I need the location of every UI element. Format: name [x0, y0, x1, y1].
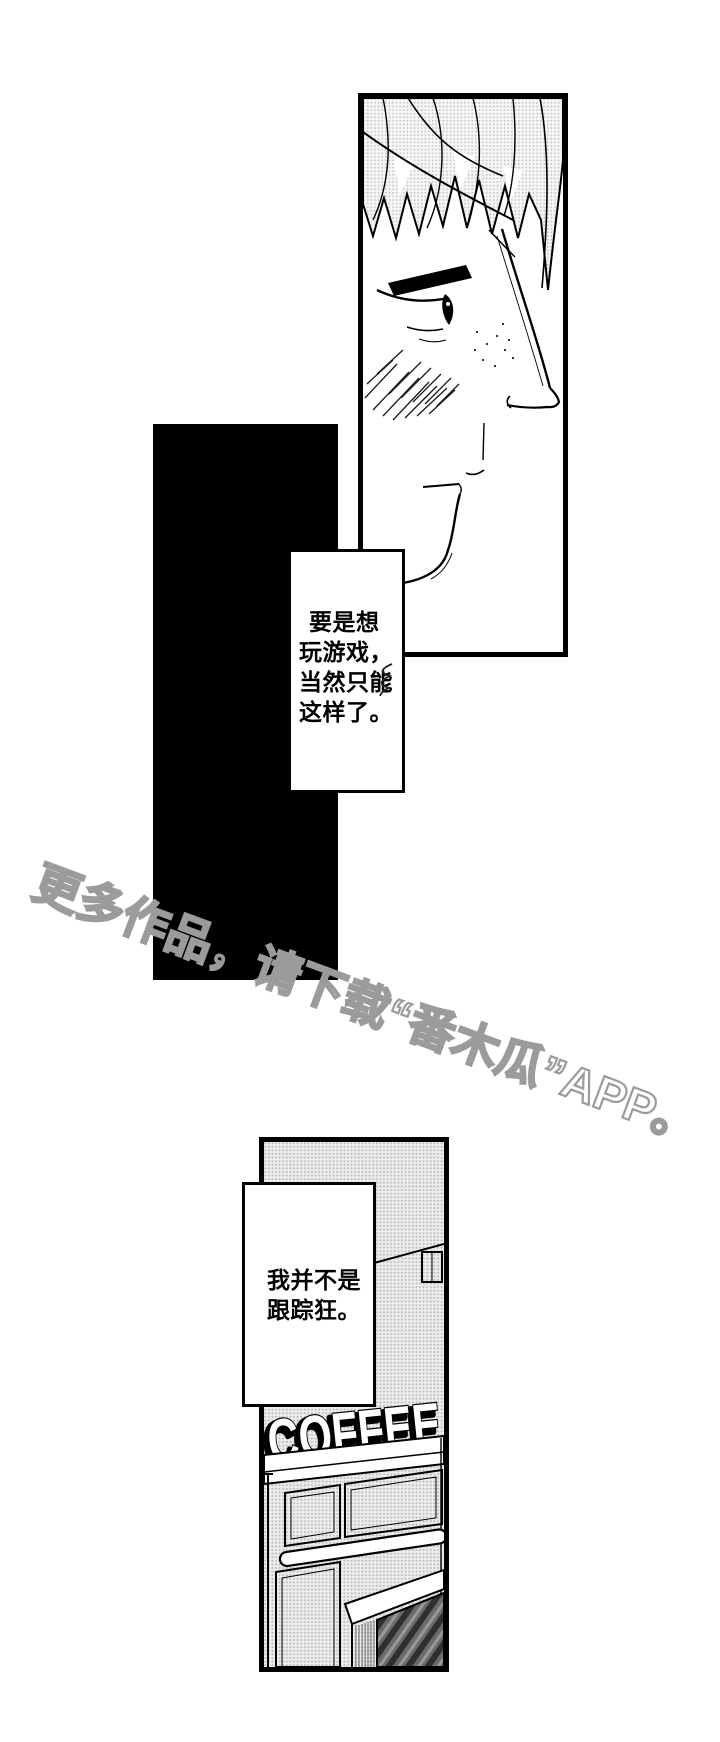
speech-bubble-2: 我并不是 跟踪狂。: [242, 1182, 376, 1407]
comic-page: 要是想 玩游戏， 当然只能 这样了。 更多作品，请下载“番木瓜”APP。: [0, 0, 720, 1742]
bubble-2-line: 跟踪狂。: [267, 1295, 373, 1325]
bubble-2-line: 我并不是: [267, 1265, 373, 1295]
sweat-squiggle-mark: [374, 660, 398, 696]
watermark-text: 更多作品，请下载“番木瓜”APP。: [26, 856, 707, 1153]
bubble-1-line: 这样了。: [299, 697, 402, 727]
bubble-1-line: 要是想: [299, 607, 402, 637]
